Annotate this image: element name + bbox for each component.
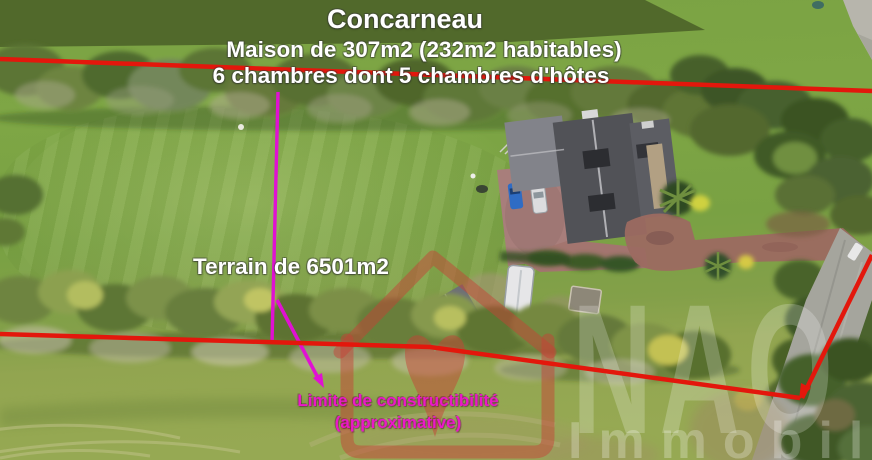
property-description-line2: 6 chambres dont 5 chambres d'hôtes: [0, 63, 822, 89]
terrain-label: Terrain de 6501m2: [193, 254, 389, 280]
property-description-line1: Maison de 307m2 (232m2 habitables): [0, 37, 848, 63]
constructibility-limit-line1: Limite de constructibilité: [0, 390, 796, 412]
constructibility-limit-line2: (approximative): [0, 412, 796, 434]
page-title: Concarneau: [0, 4, 810, 35]
constructibility-limit-label: Limite de constructibilité (approximativ…: [0, 390, 796, 434]
boundary-line-right: [799, 255, 872, 400]
boundary-line-bottom: [0, 334, 800, 398]
aerial-photo: NAO Immobilier Concarneau Maison de 307m…: [0, 0, 872, 460]
